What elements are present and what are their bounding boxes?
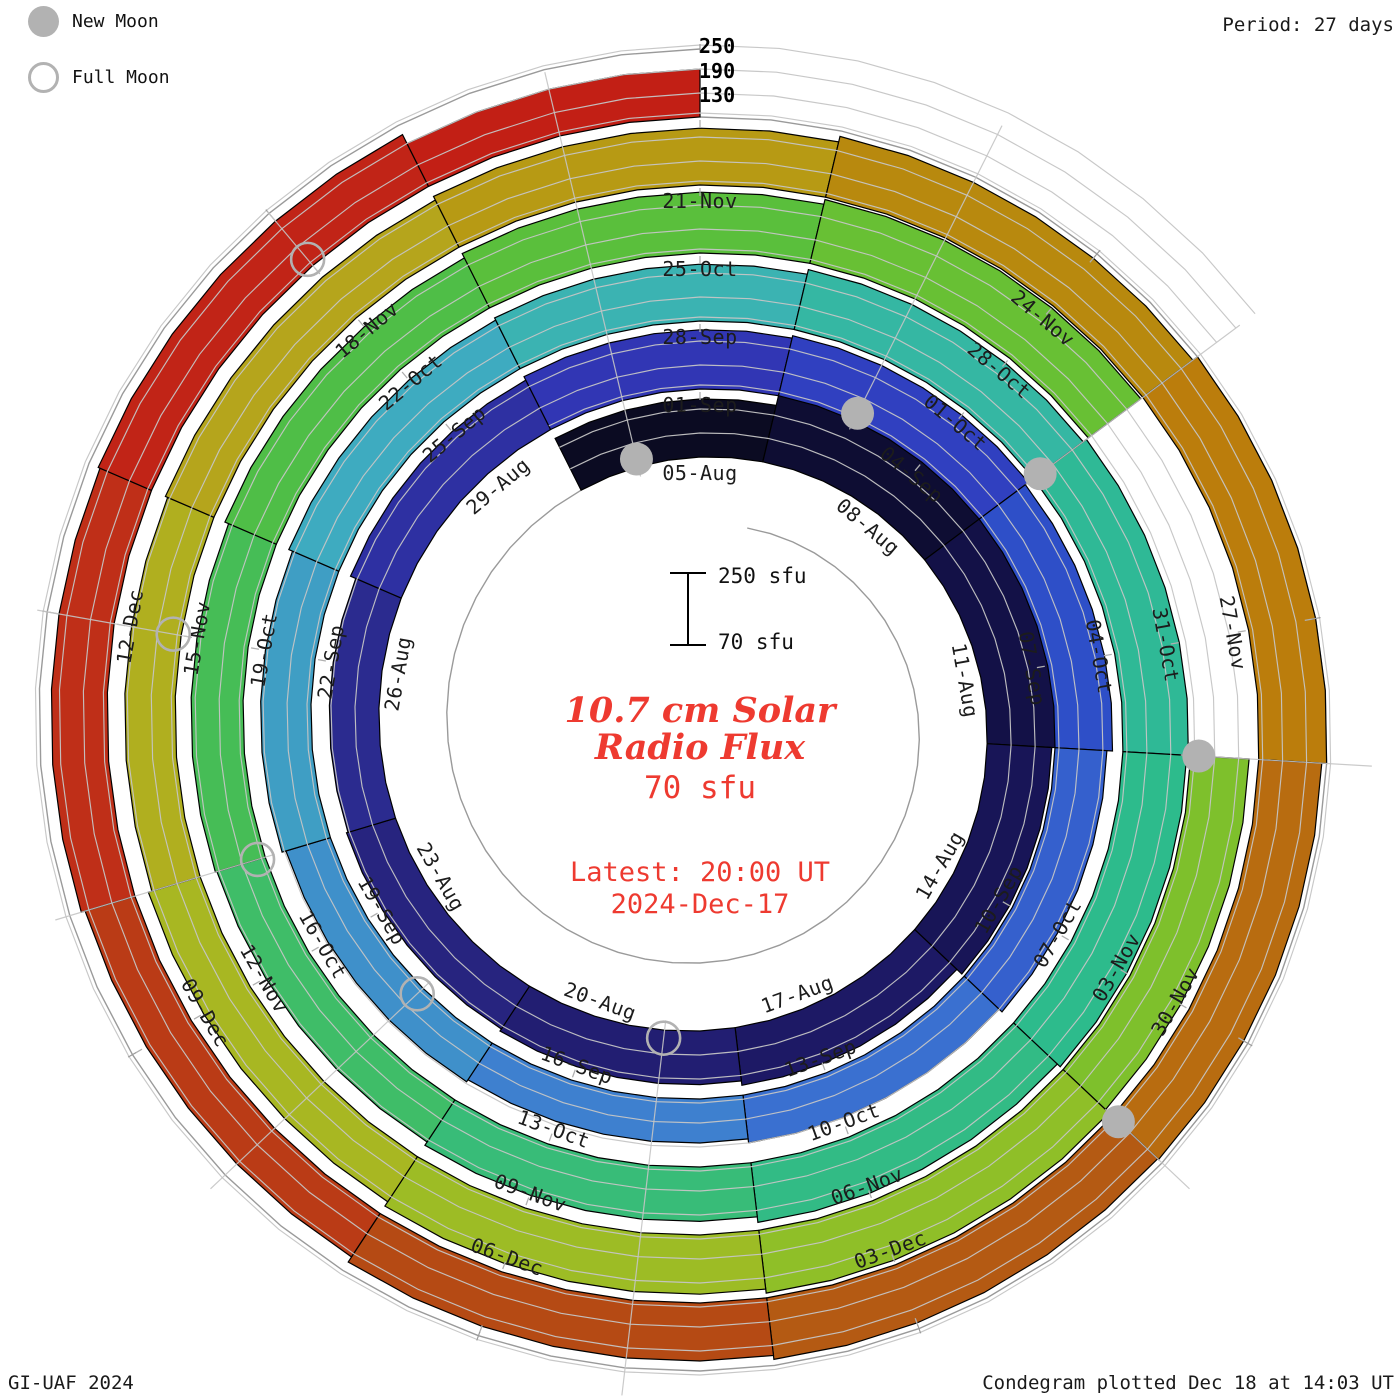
radial-axis-label-190: 190 (699, 59, 735, 83)
current-flux-value: 70 sfu (430, 770, 970, 806)
date-label-01-Sep: 01-Sep (662, 393, 737, 417)
radial-axis-label-130: 130 (699, 83, 735, 107)
new-moon-marker-02-Oct (1024, 457, 1057, 490)
latest-observation: Latest: 20:00 UT 2024-Dec-17 (430, 857, 970, 921)
plotted-timestamp-label: Condegram plotted Dec 18 at 14:03 UT (982, 1372, 1394, 1394)
scale-bar-line (687, 572, 689, 644)
chart-title-line2: Radio Flux (430, 729, 970, 766)
date-label-05-Aug: 05-Aug (662, 461, 737, 485)
chart-title-line1: 10.7 cm Solar (430, 692, 970, 729)
radial-axis-label-250: 250 (699, 34, 735, 58)
latest-time-label: Latest: 20:00 UT (430, 857, 970, 889)
legend-item-full-moon: Full Moon (28, 62, 170, 93)
scale-bar-bottom-tick (670, 644, 706, 646)
scale-bar-bottom-label: 70 sfu (718, 630, 794, 654)
chart-title: 10.7 cm Solar Radio Flux (430, 692, 970, 766)
full-moon-icon (28, 62, 59, 93)
date-label-21-Nov: 21-Nov (662, 189, 737, 213)
latest-date-label: 2024-Dec-17 (430, 889, 970, 921)
date-label-25-Oct: 25-Oct (662, 257, 737, 281)
scale-bar-top-label: 250 sfu (718, 564, 807, 588)
new-moon-marker-03-Sep (841, 397, 874, 430)
scale-bar-top-tick (670, 572, 706, 574)
period-label: Period: 27 days (1222, 14, 1394, 36)
new-moon-marker-04-Aug (620, 442, 653, 475)
new-moon-marker-01-Nov (1182, 740, 1215, 773)
full-moon-label: Full Moon (72, 67, 170, 88)
condegram-page: 05-Aug08-Aug11-Aug14-Aug17-Aug20-Aug23-A… (0, 0, 1400, 1400)
new-moon-label: New Moon (72, 11, 159, 32)
new-moon-icon (28, 6, 59, 37)
credit-label: GI-UAF 2024 (8, 1372, 134, 1394)
flux-scale-bar: 250 sfu 70 sfu (660, 570, 820, 646)
legend-item-new-moon: New Moon (28, 6, 159, 37)
new-moon-marker-01-Dec (1102, 1105, 1135, 1138)
date-label-28-Sep: 28-Sep (662, 325, 737, 349)
